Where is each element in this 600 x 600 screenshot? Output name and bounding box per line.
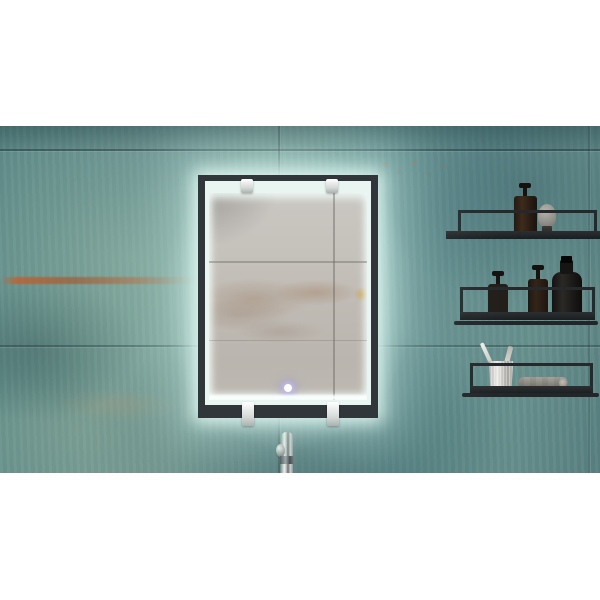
tall-pump-bottle xyxy=(528,279,548,315)
shelf-post-left xyxy=(470,363,473,387)
page xyxy=(0,0,600,600)
faucet-dark-band xyxy=(280,456,294,464)
shelf-post-left xyxy=(460,287,463,313)
shelf-post-right xyxy=(592,287,595,313)
pump-head xyxy=(519,183,531,188)
shelf-front-rail xyxy=(470,363,593,366)
led-mirror xyxy=(198,175,378,418)
shaving-brush-head xyxy=(538,204,556,228)
mirror-clip-bottom-right xyxy=(327,402,339,426)
shelf-front-rail xyxy=(458,210,597,213)
mirror-clip-bottom-left xyxy=(242,402,254,426)
mirror-glass xyxy=(209,193,367,400)
shelf-base xyxy=(460,312,595,320)
reflected-concrete-seam-lower xyxy=(209,340,367,342)
amber-pump-bottle xyxy=(514,196,537,236)
mirror-clip-top-left xyxy=(241,179,253,193)
shelf-base xyxy=(446,231,600,239)
shelf-middle xyxy=(452,256,600,324)
reflected-concrete-seam-vertical xyxy=(333,193,335,400)
shelf-bottom xyxy=(462,343,600,398)
touch-sensor-button xyxy=(284,384,292,392)
shelf-post-left xyxy=(458,210,461,232)
bottle-cap xyxy=(561,256,572,263)
shelf-under-rail xyxy=(454,321,598,325)
shelf-under-rail xyxy=(462,393,599,397)
shelf-front-rail xyxy=(460,287,595,290)
shelf-post-right xyxy=(594,210,597,232)
toothbrush xyxy=(480,342,493,363)
reflected-concrete-seam-upper xyxy=(209,261,367,263)
chrome-faucet xyxy=(280,430,294,473)
shelf-post-right xyxy=(590,363,593,387)
pump-head xyxy=(492,271,504,276)
shelf-top xyxy=(455,182,600,239)
mirror-clip-top-right xyxy=(326,179,338,193)
bathroom-photo xyxy=(0,126,600,473)
apothecary-bottle xyxy=(552,272,582,315)
pump-head xyxy=(532,265,544,270)
